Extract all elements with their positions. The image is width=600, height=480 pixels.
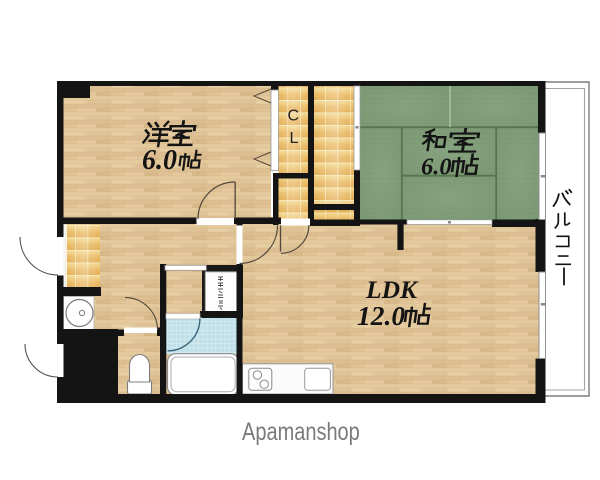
svg-text:6.0: 6.0 (142, 145, 177, 176)
svg-text:C: C (288, 108, 300, 125)
svg-text:L: L (290, 130, 299, 147)
svg-text:6.0: 6.0 (421, 154, 452, 181)
svg-text:Apamanshop: Apamanshop (242, 418, 360, 446)
svg-text:12.0: 12.0 (357, 300, 405, 331)
